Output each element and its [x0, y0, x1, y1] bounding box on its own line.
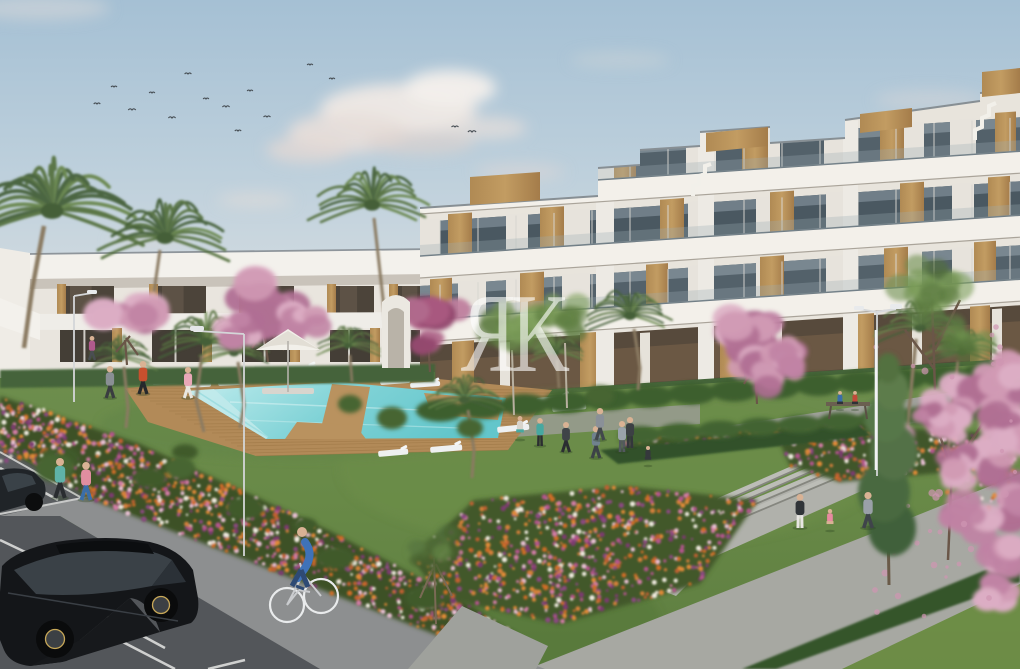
svg-text:R: R [460, 273, 515, 396]
svg-text:K: K [511, 273, 570, 396]
